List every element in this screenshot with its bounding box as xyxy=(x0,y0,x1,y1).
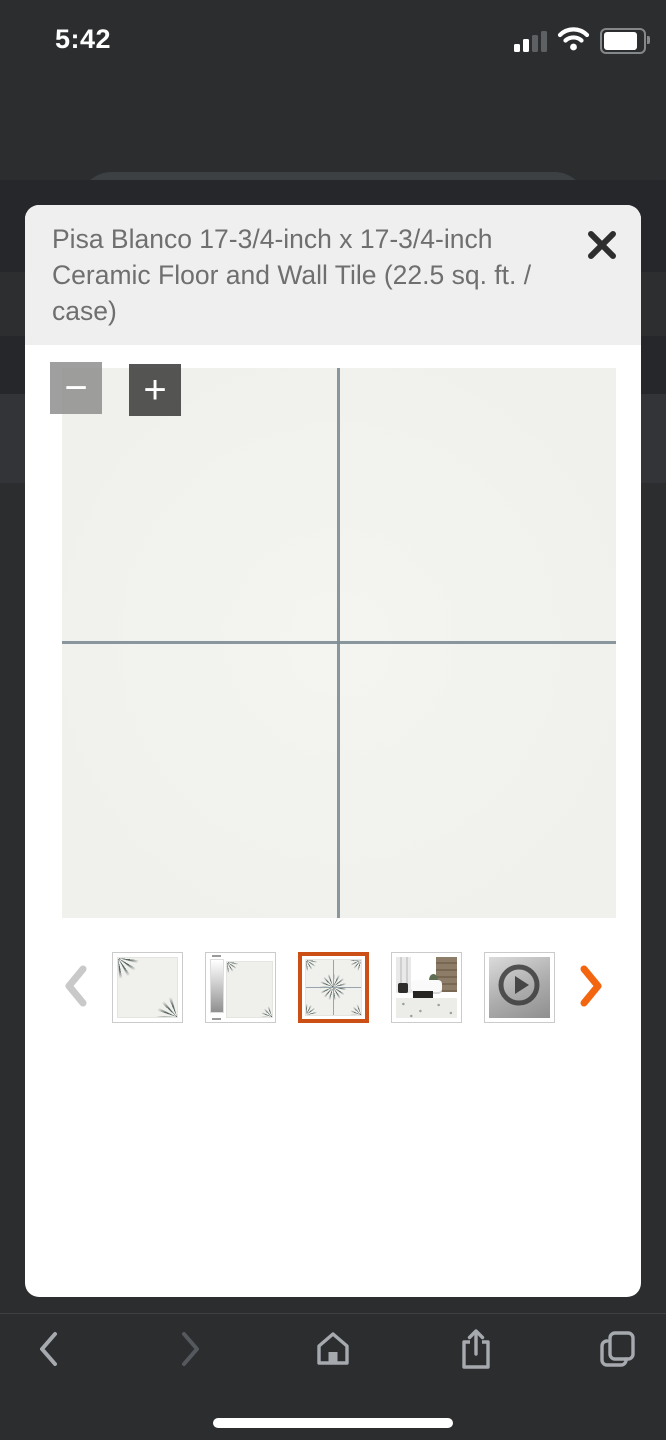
mini-fan-icon xyxy=(226,961,241,976)
share-icon xyxy=(457,1327,495,1374)
mini-fan-icon xyxy=(151,991,178,1018)
modal-header: Pisa Blanco 17-3/4-inch x 17-3/4-inch Ce… xyxy=(25,205,641,345)
nav-separator xyxy=(0,1313,666,1314)
product-title: Pisa Blanco 17-3/4-inch x 17-3/4-inch Ce… xyxy=(52,221,552,329)
scale-tick xyxy=(212,1018,221,1020)
chevron-left-icon xyxy=(62,964,88,1011)
home-icon xyxy=(312,1328,354,1373)
zoom-in-button[interactable]: + xyxy=(129,364,181,416)
mini-fan-icon xyxy=(305,959,320,974)
phone-screen: 5:42 www.homedepot.ca xyxy=(0,0,666,1440)
mini-fan-icon xyxy=(347,1001,362,1016)
thumbnail-video[interactable] xyxy=(484,952,555,1023)
nav-back-button[interactable] xyxy=(26,1325,70,1375)
home-indicator[interactable] xyxy=(213,1418,453,1428)
nav-tabs-button[interactable] xyxy=(596,1325,640,1375)
browser-toolbar: www.homedepot.ca xyxy=(0,80,666,180)
back-chevron-icon xyxy=(35,1327,61,1374)
close-icon xyxy=(583,226,621,267)
forward-chevron-icon xyxy=(178,1327,204,1374)
zoom-out-button[interactable]: − xyxy=(50,362,102,414)
status-icons xyxy=(514,26,646,56)
battery-icon xyxy=(600,28,646,54)
tile-fan-bottom-right xyxy=(466,768,616,918)
mini-fan-icon xyxy=(258,1003,273,1018)
mini-fan-icon xyxy=(347,959,362,974)
browser-bottom-nav xyxy=(0,1297,666,1440)
shade-scale-bar xyxy=(210,959,224,1013)
scale-tick xyxy=(212,955,221,957)
play-icon xyxy=(496,962,542,1013)
cellular-signal-icon xyxy=(514,30,547,52)
image-viewer-modal: Pisa Blanco 17-3/4-inch x 17-3/4-inch Ce… xyxy=(25,205,641,1297)
thumbnail-shade-scale[interactable] xyxy=(205,952,276,1023)
nav-forward-button[interactable] xyxy=(169,1325,213,1375)
nav-home-button[interactable] xyxy=(311,1325,355,1375)
plus-icon: + xyxy=(143,370,166,410)
chevron-right-icon xyxy=(579,964,605,1011)
nav-share-button[interactable] xyxy=(454,1325,498,1375)
product-image[interactable] xyxy=(62,368,616,918)
minus-icon: − xyxy=(64,368,87,408)
mini-fan-icon xyxy=(117,957,144,984)
tabs-icon xyxy=(598,1329,638,1372)
mini-fan-icon xyxy=(305,1001,320,1016)
thumbnail-four-tile-layout[interactable] xyxy=(298,952,369,1023)
grout-line-horizontal xyxy=(62,641,616,644)
thumbnail-tile-corner-fans[interactable] xyxy=(112,952,183,1023)
room-scene-image xyxy=(396,957,457,1018)
wifi-icon xyxy=(557,26,590,56)
carousel-prev-button[interactable] xyxy=(60,964,90,1010)
thumbnail-carousel xyxy=(25,947,641,1027)
clock: 5:42 xyxy=(55,24,111,55)
carousel-next-button[interactable] xyxy=(577,964,607,1010)
thumbnail-room-scene[interactable] xyxy=(391,952,462,1023)
close-button[interactable] xyxy=(581,225,623,267)
tile-fan-bottom-left xyxy=(62,768,212,918)
tile-fan-top-right xyxy=(466,368,616,518)
status-bar: 5:42 xyxy=(0,0,666,80)
